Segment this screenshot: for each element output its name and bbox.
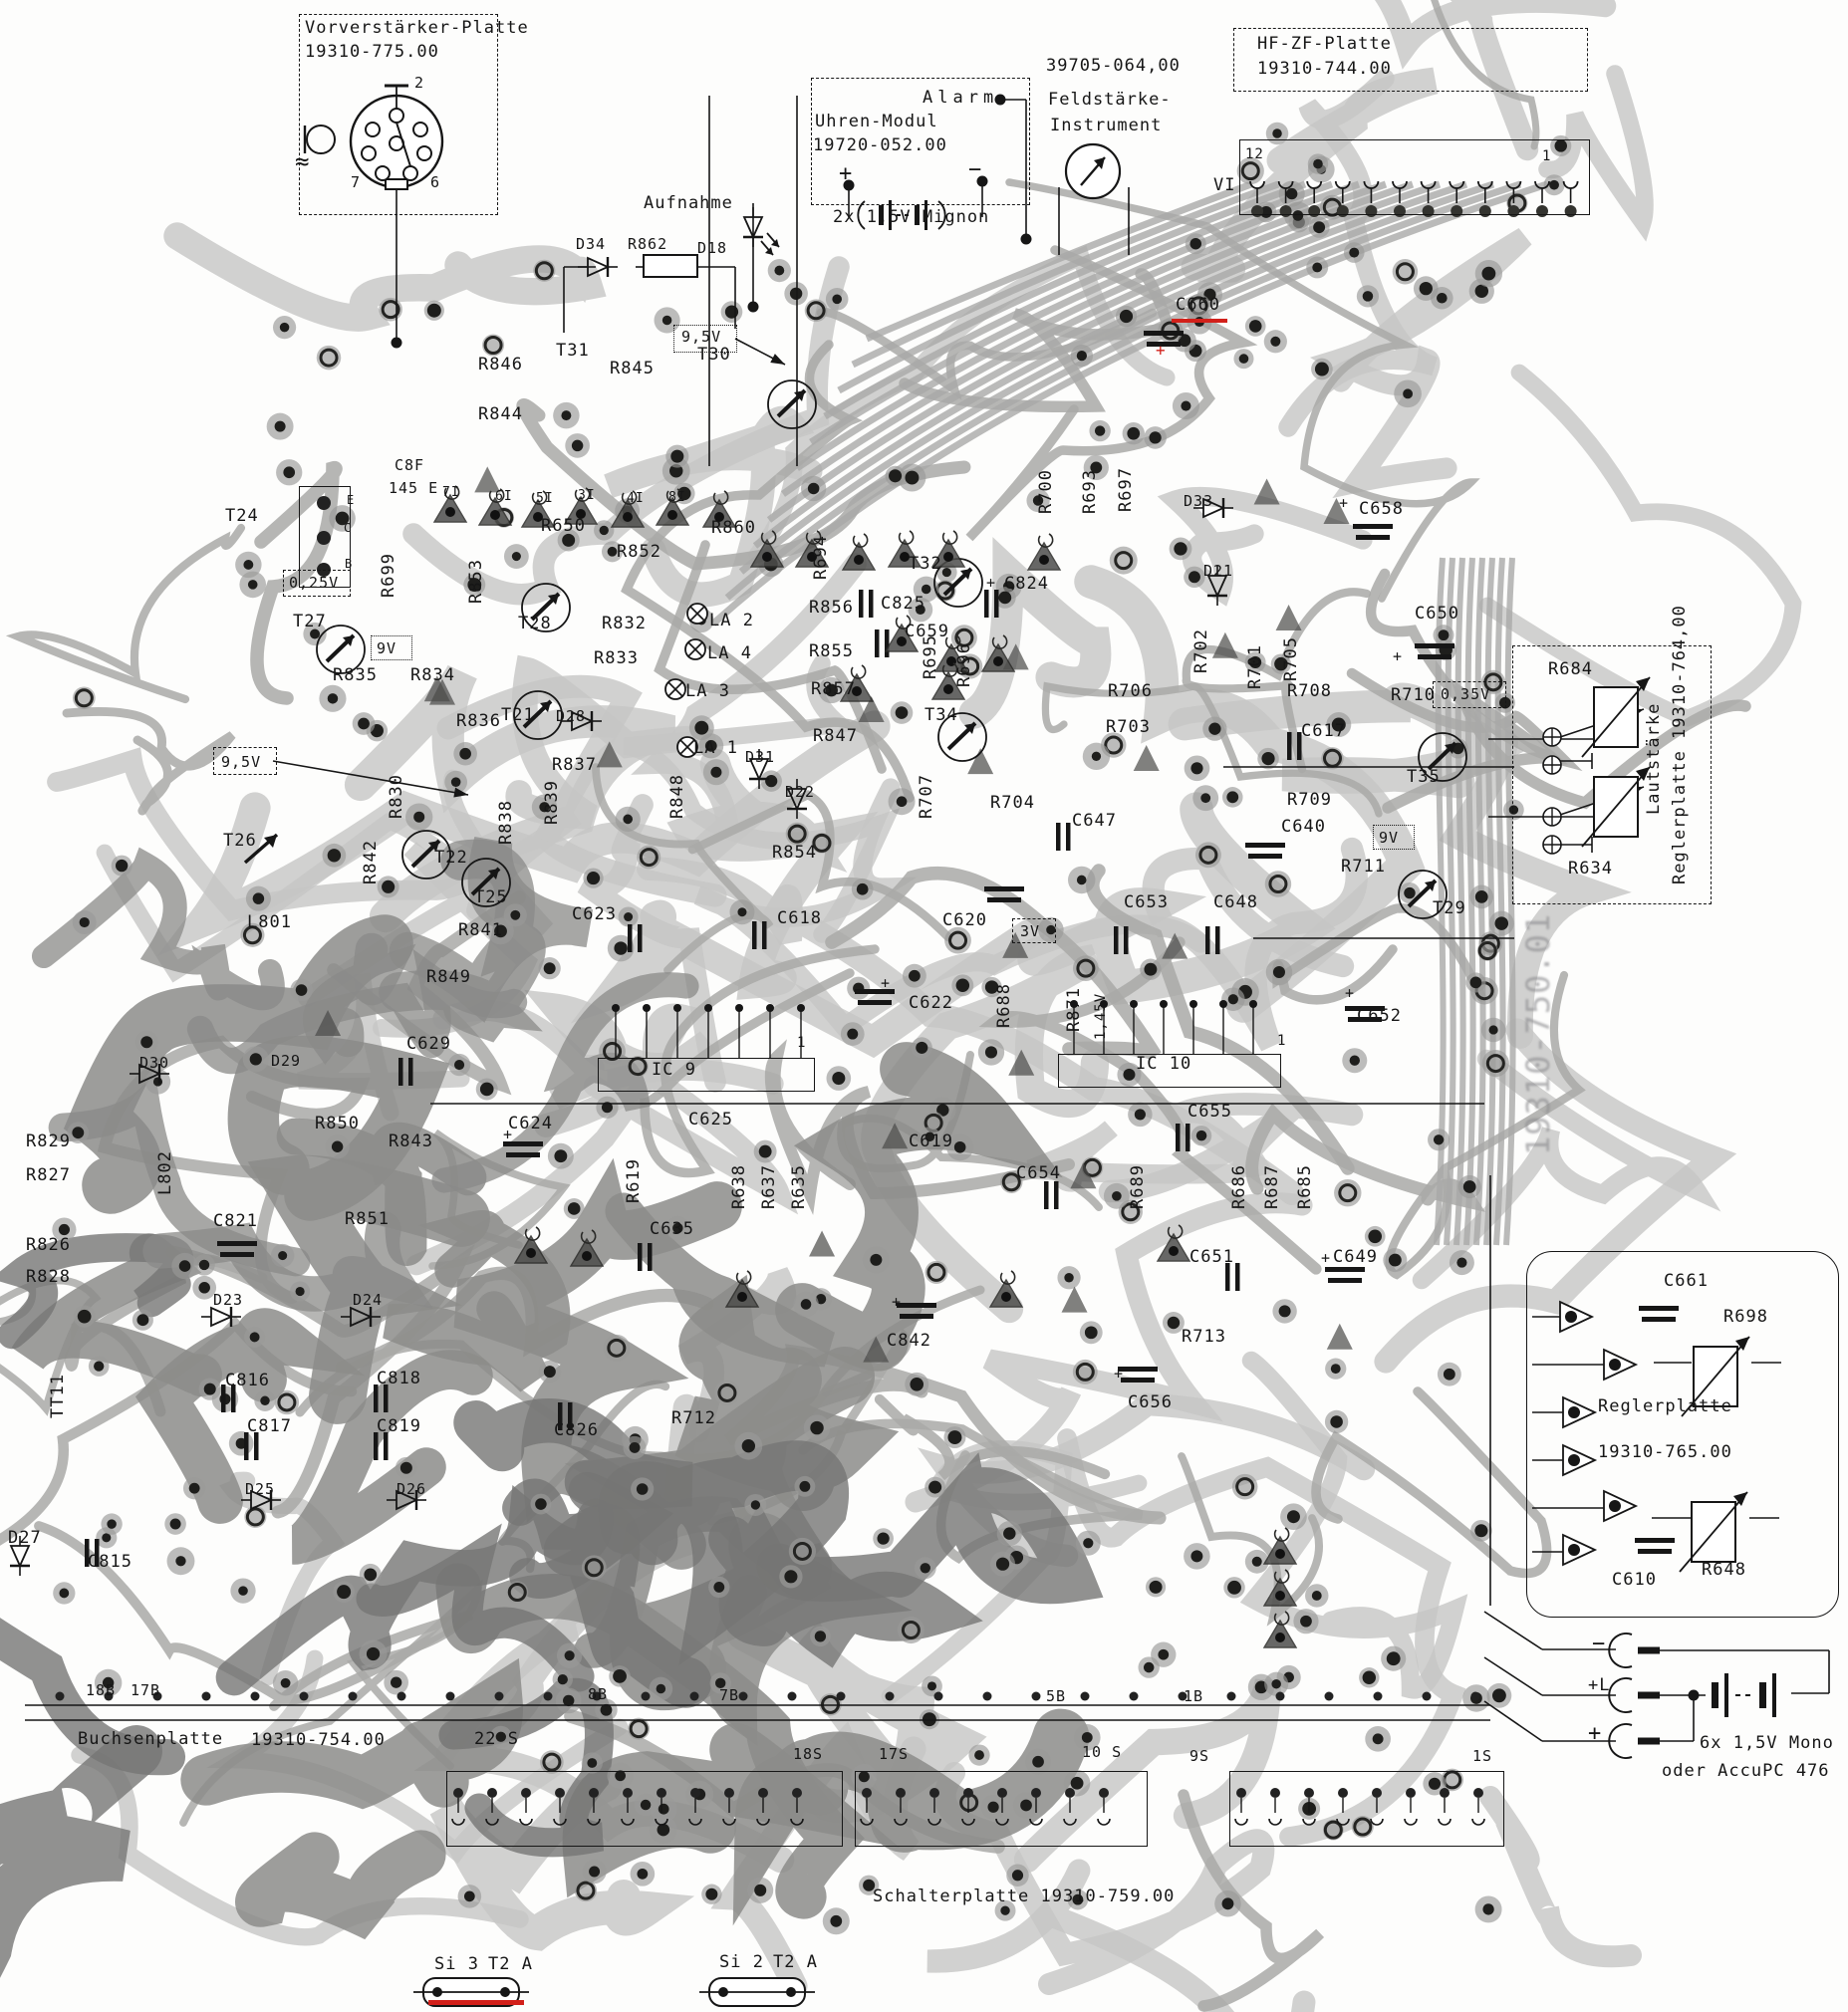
outline-box bbox=[811, 78, 1030, 205]
component-label: T28 bbox=[518, 616, 552, 632]
component-label: T22 bbox=[434, 850, 468, 867]
component-label: R710 bbox=[1391, 687, 1436, 704]
component-label: 145 E bbox=[389, 481, 438, 496]
component-label: Instrument bbox=[1050, 118, 1162, 134]
component-label: R829 bbox=[26, 1133, 71, 1150]
component-label: T32 bbox=[909, 556, 942, 573]
component-label: R705 bbox=[1283, 636, 1300, 681]
component-label: R709 bbox=[1287, 792, 1332, 809]
component-label: 1S bbox=[1472, 1749, 1492, 1764]
component-label: C640 bbox=[1281, 819, 1326, 836]
component-label: C651 bbox=[1189, 1249, 1234, 1266]
component-label: C653 bbox=[1124, 894, 1169, 911]
outline-box bbox=[1233, 28, 1588, 92]
outline-box bbox=[1058, 1054, 1281, 1088]
component-label: Aufnahme bbox=[644, 195, 733, 212]
outline-box bbox=[855, 1771, 1148, 1847]
component-label: R685 bbox=[1297, 1164, 1314, 1209]
component-label: + bbox=[986, 576, 996, 591]
outline-box bbox=[1526, 1251, 1839, 1618]
component-label: + bbox=[881, 976, 891, 991]
component-label: C660 bbox=[1176, 297, 1220, 314]
component-label: 9S bbox=[1189, 1749, 1209, 1764]
component-label: R857 bbox=[811, 681, 856, 698]
component-label: C617 bbox=[1301, 723, 1346, 740]
component-label: C655 bbox=[1188, 1104, 1232, 1121]
component-label: R839 bbox=[544, 780, 561, 825]
component-label: 1,45V bbox=[1094, 993, 1108, 1040]
component-label: C8F bbox=[395, 458, 424, 473]
component-label: R835 bbox=[333, 667, 378, 684]
component-label: + bbox=[1588, 1723, 1602, 1745]
component-label: R871 bbox=[1066, 987, 1083, 1032]
component-label: C821 bbox=[213, 1213, 258, 1230]
component-label: Si 2 bbox=[719, 1954, 764, 1971]
component-label: T27 bbox=[293, 614, 327, 630]
component-label: 3I bbox=[578, 489, 596, 502]
component-label: 8B bbox=[588, 1687, 608, 1702]
component-label: R619 bbox=[626, 1158, 643, 1203]
component-label: TT11 bbox=[50, 1374, 67, 1418]
component-label: R830 bbox=[389, 774, 405, 819]
component-label: + bbox=[1339, 496, 1349, 511]
component-label: VI bbox=[1213, 177, 1235, 194]
component-label: R638 bbox=[731, 1164, 748, 1209]
outline-box bbox=[299, 486, 351, 588]
component-label: R701 bbox=[1247, 644, 1264, 689]
component-label: LA 2 bbox=[709, 613, 754, 629]
outline-box bbox=[1239, 139, 1590, 215]
component-label: D21 bbox=[1203, 564, 1233, 579]
component-label: R704 bbox=[990, 795, 1035, 812]
component-label: T31 bbox=[556, 343, 590, 360]
outline-box bbox=[1433, 681, 1506, 708]
component-label: T24 bbox=[225, 508, 259, 525]
component-label: +L bbox=[1588, 1677, 1610, 1694]
component-label: 1 bbox=[1277, 1034, 1286, 1048]
component-label: 10 S bbox=[1082, 1745, 1122, 1760]
component-label: R635 bbox=[791, 1164, 808, 1209]
component-label: D26 bbox=[396, 1482, 426, 1497]
component-label: R848 bbox=[669, 774, 686, 819]
component-label: T35 bbox=[1407, 769, 1441, 786]
component-label: + bbox=[1114, 1367, 1124, 1382]
component-label: C624 bbox=[508, 1116, 553, 1132]
component-label: D22 bbox=[785, 785, 815, 800]
component-label: R696 bbox=[956, 642, 973, 687]
component-label: R844 bbox=[478, 406, 523, 423]
component-label: T21 bbox=[501, 707, 535, 724]
component-label: R637 bbox=[761, 1164, 778, 1209]
component-label: C815 bbox=[88, 1554, 132, 1571]
outline-box bbox=[1229, 1771, 1504, 1847]
component-label: R841 bbox=[458, 922, 503, 939]
component-label: R707 bbox=[919, 774, 935, 819]
component-label: D25 bbox=[245, 1482, 275, 1497]
component-label: T34 bbox=[924, 707, 958, 724]
component-label: 6x 1,5V Mono bbox=[1700, 1735, 1834, 1752]
component-label: R846 bbox=[478, 357, 523, 374]
component-label: R703 bbox=[1106, 719, 1151, 736]
component-label: R856 bbox=[809, 600, 854, 617]
component-label: C658 bbox=[1359, 501, 1404, 518]
component-label: T2 A bbox=[488, 1956, 533, 1973]
component-label: C650 bbox=[1415, 606, 1459, 623]
component-label: D24 bbox=[353, 1293, 383, 1308]
component-label: + bbox=[1321, 1251, 1331, 1266]
component-label: 4I bbox=[627, 492, 645, 505]
component-label: R838 bbox=[498, 800, 515, 845]
red-underline bbox=[428, 2000, 524, 2005]
component-label: R826 bbox=[26, 1237, 71, 1254]
component-label: LA 3 bbox=[685, 683, 730, 700]
component-label: 17S bbox=[879, 1747, 909, 1762]
outline-box bbox=[1373, 825, 1415, 850]
pcb-layout-diagram: Vorverstärker-Platte19310-775.00276≈Aufn… bbox=[0, 0, 1848, 2012]
component-label: R650 bbox=[541, 518, 586, 535]
component-label: R860 bbox=[711, 520, 756, 537]
component-label: R711 bbox=[1341, 859, 1386, 876]
component-label: + bbox=[1345, 986, 1355, 1001]
component-label: R836 bbox=[456, 713, 501, 730]
component-label: C654 bbox=[1016, 1165, 1061, 1182]
component-label: 5B bbox=[1046, 1689, 1066, 1704]
component-label: R843 bbox=[389, 1133, 433, 1150]
outline-box bbox=[371, 635, 412, 660]
component-label: R713 bbox=[1182, 1329, 1226, 1346]
component-label: R849 bbox=[426, 969, 471, 986]
component-label: R699 bbox=[381, 553, 397, 598]
component-label: R832 bbox=[602, 616, 647, 632]
component-label: − bbox=[1592, 1634, 1606, 1655]
component-label: R837 bbox=[552, 757, 597, 774]
component-label: T26 bbox=[223, 833, 257, 850]
component-label: R842 bbox=[363, 840, 380, 884]
component-label: R855 bbox=[809, 643, 854, 660]
component-label: R688 bbox=[996, 983, 1013, 1028]
component-label: 7I bbox=[442, 486, 460, 499]
component-label: C647 bbox=[1072, 813, 1117, 830]
component-label: R694 bbox=[813, 535, 830, 580]
component-label: 17B bbox=[131, 1683, 160, 1698]
component-label: + bbox=[503, 1128, 513, 1142]
component-label: R852 bbox=[617, 544, 661, 561]
component-label: Buchsenplatte bbox=[78, 1731, 223, 1748]
component-label: + bbox=[1156, 343, 1167, 359]
outline-box bbox=[598, 1058, 815, 1092]
component-label: R693 bbox=[1082, 469, 1099, 514]
labels-layer: Vorverstärker-Platte19310-775.00276≈Aufn… bbox=[0, 0, 1848, 2012]
outline-box bbox=[1012, 918, 1056, 943]
component-label: C842 bbox=[887, 1333, 931, 1350]
component-label: R687 bbox=[1264, 1164, 1281, 1209]
component-label: R833 bbox=[594, 650, 639, 667]
outline-box bbox=[213, 747, 277, 775]
component-label: C649 bbox=[1333, 1249, 1378, 1266]
component-label: 1B bbox=[1184, 1689, 1203, 1704]
component-label: D18 bbox=[697, 241, 727, 256]
component-label: C826 bbox=[554, 1422, 599, 1439]
component-label: 6I bbox=[495, 490, 513, 503]
component-label: R708 bbox=[1287, 683, 1332, 700]
component-label: + bbox=[892, 1295, 902, 1310]
component-label: C623 bbox=[572, 906, 617, 923]
component-label: R697 bbox=[1118, 467, 1135, 512]
component-label: R862 bbox=[628, 237, 667, 252]
component-label: R828 bbox=[26, 1269, 71, 1286]
component-label: C619 bbox=[909, 1133, 953, 1150]
component-label: C825 bbox=[881, 596, 925, 613]
component-label: 5I bbox=[536, 492, 554, 505]
component-label: Feldstärke- bbox=[1048, 92, 1172, 109]
component-label: 18S bbox=[793, 1747, 823, 1762]
outline-box bbox=[446, 1771, 843, 1847]
component-label: 19310-754.00 bbox=[251, 1732, 386, 1749]
component-label: 22 S bbox=[474, 1731, 519, 1748]
component-label: T2 A bbox=[773, 1954, 818, 1971]
component-label: C817 bbox=[247, 1418, 292, 1435]
component-label: C818 bbox=[377, 1371, 421, 1387]
component-label: C620 bbox=[942, 912, 987, 929]
component-label: 19310-750.01 bbox=[1522, 913, 1554, 1155]
component-label: D31 bbox=[745, 750, 775, 765]
outline-box bbox=[299, 14, 498, 215]
component-label: R695 bbox=[923, 634, 939, 679]
component-label: C652 bbox=[1357, 1008, 1402, 1025]
component-label: R700 bbox=[1038, 469, 1055, 514]
component-label: D30 bbox=[139, 1056, 169, 1071]
component-label: R689 bbox=[1130, 1164, 1147, 1209]
component-label: R712 bbox=[671, 1410, 716, 1427]
component-label: C635 bbox=[650, 1221, 694, 1238]
component-label: D33 bbox=[1184, 494, 1213, 509]
component-label: T29 bbox=[1433, 900, 1466, 917]
component-label: 18B bbox=[86, 1683, 116, 1698]
component-label: LA 4 bbox=[707, 645, 752, 662]
component-label: C648 bbox=[1213, 894, 1258, 911]
component-label: Si 3 bbox=[434, 1956, 479, 1973]
component-label: 8I bbox=[668, 491, 686, 504]
component-label: R854 bbox=[772, 845, 817, 862]
component-label: R827 bbox=[26, 1167, 71, 1184]
component-label: C824 bbox=[1004, 576, 1049, 593]
component-label: R706 bbox=[1108, 683, 1153, 700]
component-label: R847 bbox=[813, 728, 858, 745]
component-label: oder AccuPC 476 bbox=[1662, 1763, 1830, 1780]
component-label: R845 bbox=[610, 361, 655, 377]
component-label: R850 bbox=[315, 1116, 360, 1132]
component-label: D28 bbox=[556, 709, 586, 724]
component-label: + bbox=[1393, 649, 1403, 664]
component-label: C625 bbox=[688, 1112, 733, 1129]
component-label: R702 bbox=[1193, 629, 1210, 673]
component-label: C629 bbox=[406, 1036, 451, 1053]
component-label: R853 bbox=[468, 559, 485, 604]
component-label: LA 1 bbox=[693, 740, 738, 757]
component-label: D23 bbox=[213, 1293, 243, 1308]
component-label: 7B bbox=[719, 1688, 739, 1703]
component-label: L802 bbox=[157, 1150, 174, 1195]
component-label: D27 bbox=[8, 1530, 42, 1547]
component-label: T25 bbox=[474, 889, 508, 906]
component-label: D29 bbox=[271, 1054, 301, 1069]
outline-box bbox=[673, 325, 737, 353]
component-label: C819 bbox=[377, 1418, 421, 1435]
component-label: D34 bbox=[576, 237, 606, 252]
component-label: 2x 1,5V Mignon bbox=[833, 209, 989, 226]
component-label: C656 bbox=[1128, 1394, 1173, 1411]
component-label: C816 bbox=[225, 1373, 270, 1389]
component-label: R851 bbox=[345, 1211, 390, 1228]
component-label: 1 bbox=[797, 1036, 806, 1050]
component-label: C618 bbox=[777, 910, 822, 927]
component-label: R686 bbox=[1231, 1164, 1248, 1209]
component-label: Schalterplatte 19310-759.00 bbox=[873, 1888, 1175, 1905]
component-label: 39705-064,00 bbox=[1046, 58, 1181, 75]
component-label: R834 bbox=[410, 667, 455, 684]
component-label: L801 bbox=[247, 914, 292, 931]
outline-box bbox=[1512, 645, 1712, 904]
component-label: C622 bbox=[909, 995, 953, 1012]
red-underline bbox=[1172, 319, 1227, 323]
